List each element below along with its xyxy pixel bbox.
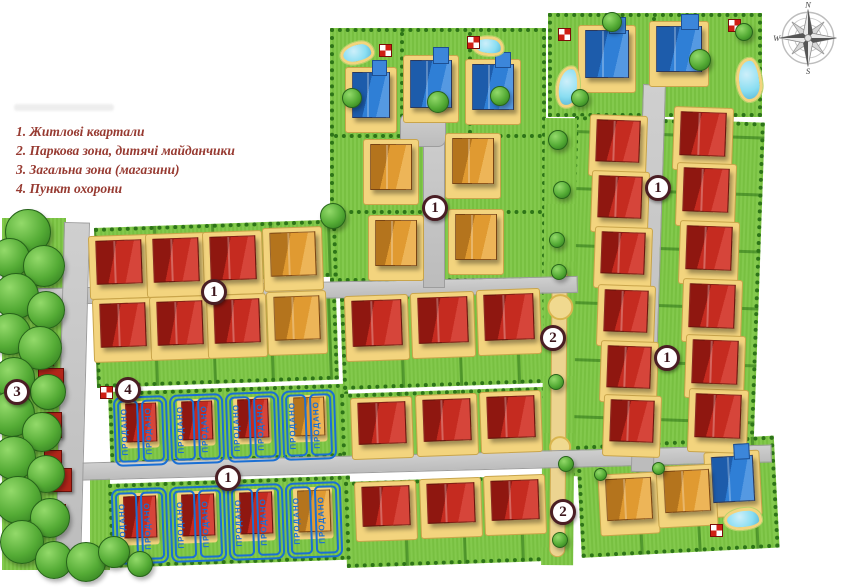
tree	[490, 86, 510, 106]
sold-label: ПРОДАНО	[175, 494, 187, 554]
house-red	[426, 482, 475, 524]
sold-half-lot: ПРОДАНО	[309, 393, 333, 456]
sold-half-lot: ПРОДАНО	[253, 395, 277, 458]
house-red	[99, 302, 147, 348]
sold-half-lot: ПРОДАНО	[117, 400, 140, 463]
sold-half-lot: ПРОДАНО	[197, 397, 221, 460]
house-red	[483, 293, 535, 341]
tree	[30, 374, 66, 410]
house-red	[486, 395, 535, 439]
map-badge-2: 2	[540, 325, 566, 351]
tree	[548, 130, 568, 150]
house-red	[688, 283, 736, 329]
tree	[689, 49, 711, 71]
utility-marker	[467, 36, 480, 49]
house-red	[679, 111, 727, 157]
map-badge-1: 1	[645, 175, 671, 201]
house-red	[351, 299, 403, 347]
house-red	[691, 339, 739, 385]
house-red	[609, 399, 654, 443]
tree	[553, 181, 571, 199]
house-red	[685, 225, 733, 271]
sold-lot: ПРОДАНОПРОДАНО	[285, 481, 344, 559]
house-orange	[273, 295, 321, 341]
sold-half-lot: ПРОДАНО	[140, 491, 165, 560]
sold-label: ПРОДАНО	[119, 404, 131, 458]
tree	[558, 456, 574, 472]
house-red	[682, 167, 730, 213]
house-red	[595, 119, 640, 163]
sold-label: ПРОДАНО	[142, 496, 154, 556]
sold-label: ПРОДАНО	[316, 490, 328, 550]
site-plan: 1. Житлові квартали 2. Паркова зона, дит…	[0, 0, 845, 587]
house-blue	[711, 455, 755, 503]
utility-marker	[558, 28, 571, 41]
sold-half-lot: ПРОДАНО	[256, 487, 281, 556]
house-orange	[605, 477, 653, 521]
tree	[551, 264, 567, 280]
tree	[342, 88, 362, 108]
house-red	[357, 401, 406, 445]
map-items-layer: ПРОДАНОПРОДАНОПРОДАНОПРОДАНОПРОДАНОПРОДА…	[0, 0, 845, 587]
house-red	[597, 175, 642, 219]
house-red	[606, 345, 651, 389]
tree	[427, 91, 449, 113]
sold-lot: ПРОДАНОПРОДАНО	[169, 485, 228, 563]
house-red	[490, 479, 539, 521]
sold-half-lot: ПРОДАНО	[289, 486, 313, 555]
map-badge-2: 2	[550, 499, 576, 525]
sold-half-lot: ПРОДАНО	[314, 485, 339, 554]
map-badge-1: 1	[422, 195, 448, 221]
tree	[98, 536, 130, 568]
map-badge-1: 1	[654, 345, 680, 371]
tree	[571, 89, 589, 107]
house-orange	[375, 220, 417, 266]
pond	[338, 39, 376, 68]
house-orange	[452, 138, 494, 184]
sold-label: ПРОДАНО	[291, 490, 303, 550]
house-orange	[663, 469, 711, 513]
tree	[602, 12, 622, 32]
sold-lot: ПРОДАНОПРОДАНО	[227, 483, 286, 561]
house-orange	[269, 231, 317, 277]
map-badge-3: 3	[4, 379, 30, 405]
sold-half-lot: ПРОДАНО	[173, 490, 197, 559]
tree	[549, 232, 565, 248]
tree	[127, 551, 153, 577]
sold-half-lot: ПРОДАНО	[285, 394, 308, 457]
sold-lot: ПРОДАНОПРОДАНО	[225, 391, 281, 463]
tree	[320, 203, 346, 229]
tree	[552, 532, 568, 548]
sold-label: ПРОДАНО	[175, 402, 187, 456]
sold-label: ПРОДАНО	[200, 494, 212, 554]
house-red	[361, 485, 410, 527]
sold-label: ПРОДАНО	[143, 404, 155, 458]
house-red	[156, 300, 204, 346]
sold-label: ПРОДАНО	[287, 398, 299, 452]
sold-half-lot: ПРОДАНО	[141, 399, 165, 462]
sold-half-lot: ПРОДАНО	[229, 396, 252, 459]
sold-label: ПРОДАНО	[231, 400, 243, 454]
sold-label: ПРОДАНО	[199, 402, 211, 456]
sold-label: ПРОДАНО	[311, 398, 323, 452]
sold-label: ПРОДАНО	[255, 400, 267, 454]
tree	[27, 291, 65, 329]
house-red	[694, 393, 742, 439]
map-badge-4: 4	[115, 377, 141, 403]
sold-lot: ПРОДАНОПРОДАНО	[113, 395, 169, 467]
house-orange	[455, 214, 497, 260]
tree	[594, 468, 607, 481]
tree	[735, 23, 753, 41]
house-red	[95, 239, 143, 285]
house-red	[422, 398, 471, 442]
sold-label: ПРОДАНО	[258, 492, 270, 552]
house-red	[213, 298, 261, 344]
pond	[734, 57, 764, 103]
house-blue	[585, 30, 629, 78]
map-badge-1: 1	[215, 465, 241, 491]
house-red	[152, 237, 200, 283]
sold-lot: ПРОДАНОПРОДАНО	[281, 389, 337, 461]
house-red	[209, 235, 257, 281]
sold-half-lot: ПРОДАНО	[231, 488, 255, 557]
map-badge-1: 1	[201, 279, 227, 305]
utility-marker	[100, 386, 113, 399]
sold-half-lot: ПРОДАНО	[173, 398, 196, 461]
house-orange	[370, 144, 412, 190]
sold-half-lot: ПРОДАНО	[198, 489, 223, 558]
utility-marker	[710, 524, 723, 537]
house-red	[600, 231, 645, 275]
house-red	[603, 289, 648, 333]
tree	[652, 462, 665, 475]
house-red	[417, 296, 469, 344]
sold-label: ПРОДАНО	[233, 492, 245, 552]
tree	[548, 374, 564, 390]
utility-marker	[379, 44, 392, 57]
sold-lot: ПРОДАНОПРОДАНО	[169, 393, 225, 465]
